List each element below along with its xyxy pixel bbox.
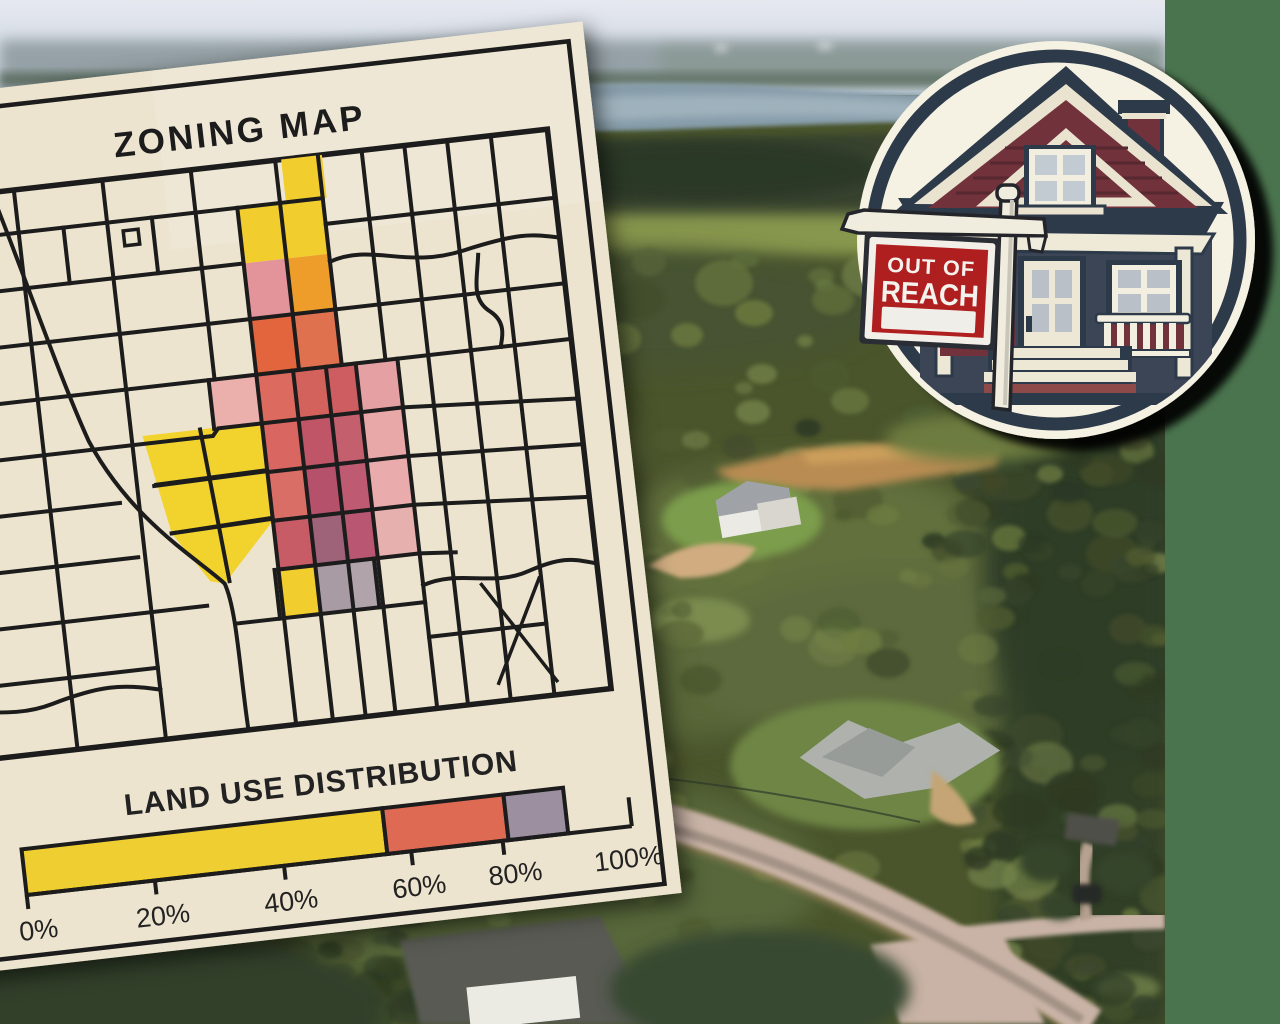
svg-text:0%: 0%: [18, 913, 60, 947]
svg-text:20%: 20%: [134, 898, 191, 934]
svg-text:40%: 40%: [263, 883, 320, 919]
svg-text:60%: 60%: [391, 869, 448, 905]
svg-text:80%: 80%: [487, 856, 544, 892]
